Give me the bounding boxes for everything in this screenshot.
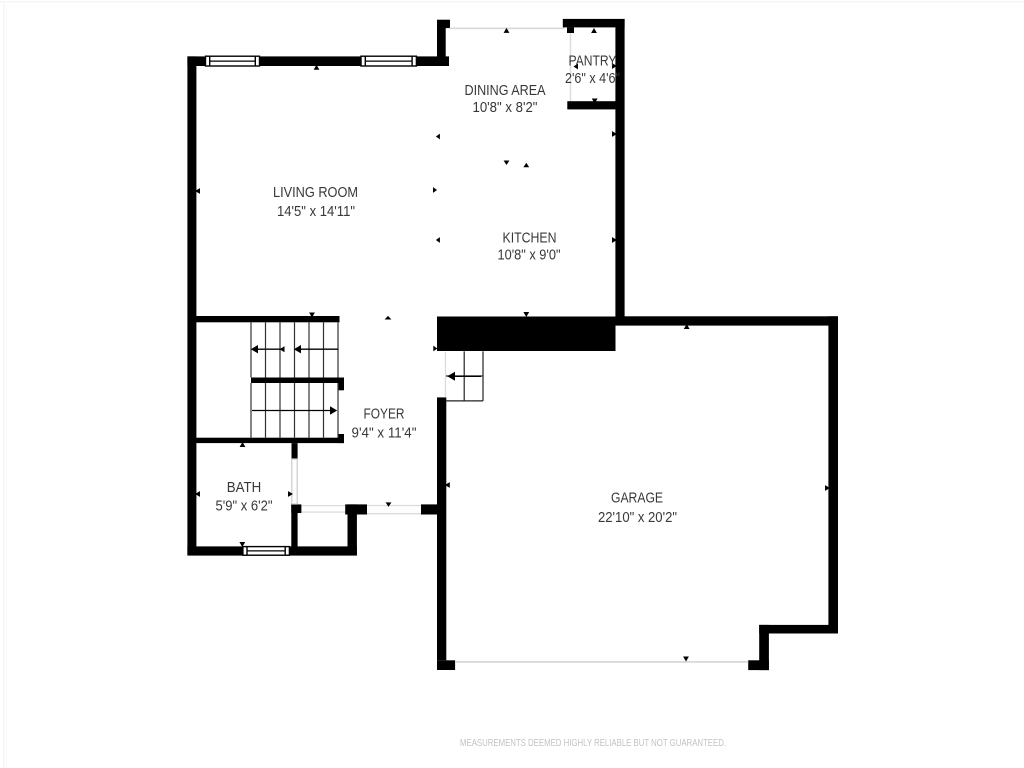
svg-text:22'10" x 20'2": 22'10" x 20'2" (598, 510, 677, 526)
svg-text:10'8" x 8'2": 10'8" x 8'2" (473, 100, 538, 116)
svg-text:FOYER: FOYER (364, 407, 405, 423)
svg-text:10'8" x 9'0": 10'8" x 9'0" (498, 248, 561, 264)
svg-text:PANTRY: PANTRY (569, 54, 617, 70)
svg-text:MEASUREMENTS DEEMED HIGHLY REL: MEASUREMENTS DEEMED HIGHLY RELIABLE BUT … (460, 738, 726, 749)
svg-text:5'9" x 6'2": 5'9" x 6'2" (216, 499, 273, 515)
svg-text:BATH: BATH (227, 480, 262, 496)
svg-text:2'6" x 4'6": 2'6" x 4'6" (565, 71, 620, 87)
svg-text:LIVING ROOM: LIVING ROOM (273, 185, 358, 201)
svg-text:GARAGE: GARAGE (611, 490, 663, 506)
svg-text:KITCHEN: KITCHEN (503, 231, 557, 247)
svg-text:DINING AREA: DINING AREA (465, 83, 546, 99)
svg-text:14'5" x 14'11": 14'5" x 14'11" (277, 204, 355, 220)
svg-text:9'4" x 11'4": 9'4" x 11'4" (352, 426, 417, 442)
